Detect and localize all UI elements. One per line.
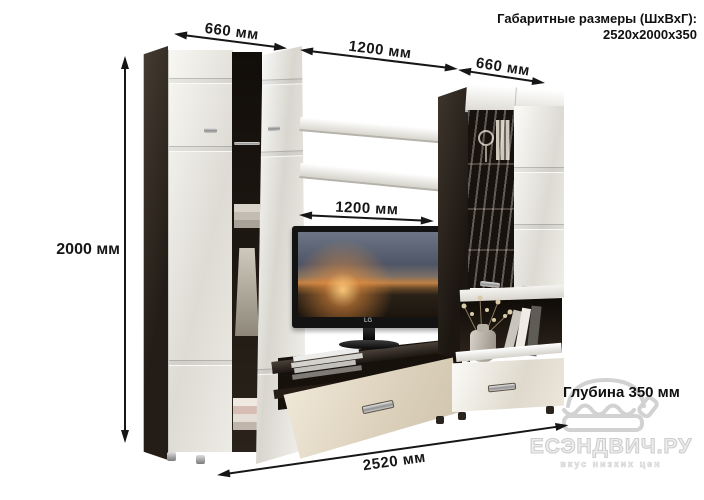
dimension-label: 660 мм [175, 16, 288, 47]
tv-stand-base [339, 340, 399, 349]
arrow-down-icon [121, 430, 129, 443]
door-groove [256, 79, 306, 87]
hanging-rod [234, 142, 260, 145]
folded-clothes [234, 220, 260, 228]
watermark-slogan-text: вкус низких цен [548, 459, 674, 469]
door-groove [514, 224, 564, 230]
folded-clothes [234, 204, 260, 212]
door-groove [169, 78, 233, 84]
hanging-garment [235, 248, 259, 336]
linen-stack [233, 406, 261, 414]
product-dimension-image: ЕСЭНДВИЧ.РУ вкус низких цен [0, 0, 704, 500]
wardrobe-side-panel [141, 46, 168, 460]
wardrobe-foot [196, 455, 205, 464]
cabinet-foot [546, 406, 554, 414]
door-groove [169, 146, 233, 152]
dimension-line [124, 59, 126, 440]
overall-dimensions-value: 2520x2000x350 [497, 27, 697, 43]
wardrobe-foot [167, 452, 176, 461]
door-groove [169, 360, 233, 366]
door-groove [514, 167, 564, 173]
dimension-label: 2000 мм [56, 241, 120, 259]
wall-shelf-top [299, 117, 460, 145]
dimension-width-1200-top: 1200 мм [300, 42, 458, 77]
tv-brand-logo: LG [292, 318, 444, 324]
vase-neck [477, 324, 489, 332]
overall-dimensions-header: Габаритные размеры (ШхВхГ): 2520x2000x35… [497, 11, 697, 44]
cabinet-white-door [514, 106, 564, 290]
dimension-label: 1200 мм [301, 32, 459, 68]
folded-clothes [234, 212, 260, 220]
glass-reflection [468, 110, 514, 288]
wardrobe-door-closed [168, 50, 233, 452]
sandwich-logo-icon [556, 372, 664, 434]
linen-stack [233, 398, 261, 406]
wall-shelf-bottom [299, 163, 460, 193]
cabinet-foot [458, 412, 466, 420]
tv-screen [298, 232, 438, 317]
door-handle [268, 126, 280, 132]
door-groove [256, 150, 306, 158]
dimension-height-2000: 2000 мм [117, 57, 133, 442]
bench-foot [436, 416, 444, 424]
overall-dimensions-title: Габаритные размеры (ШхВхГ): [497, 11, 697, 27]
cabinet-glass-door [468, 110, 516, 288]
door-handle [204, 128, 217, 133]
depth-dimension-label: Глубина 350 мм [563, 384, 680, 401]
